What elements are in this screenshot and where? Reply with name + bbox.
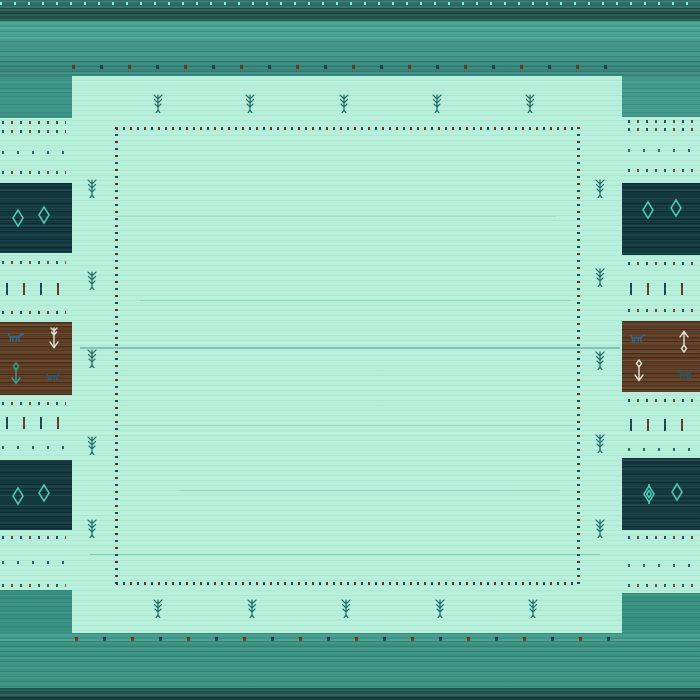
guard-dot-row: [628, 564, 696, 567]
rug-photo: [0, 0, 700, 700]
tree-motif: [524, 93, 536, 113]
guard-dash-row: [630, 419, 692, 431]
guard-dot-row: [75, 637, 622, 641]
animal-motif: [630, 333, 646, 345]
tree-motif: [340, 598, 352, 618]
guard-dot-row: [2, 130, 66, 133]
tree-motif: [152, 598, 164, 618]
guard-dot-row: [72, 65, 622, 69]
guard-dot-row: [628, 309, 696, 312]
band-stripe: [0, 641, 700, 688]
animal-motif: [676, 369, 692, 381]
weft-streak: [140, 300, 570, 301]
diamond-motif: [11, 486, 25, 506]
selvedge-dot-row: [0, 2, 700, 5]
tree-motif: [434, 598, 446, 618]
tree-motif: [594, 267, 606, 287]
panel-navy-bottom-right: [622, 458, 700, 530]
guard-dot-row: [628, 584, 696, 587]
rug-bottom-border-band: [0, 633, 700, 700]
animal-motif: [8, 332, 24, 344]
guard-dot-row: [2, 561, 66, 564]
tree-motif: [338, 93, 350, 113]
panel-navy-top-right: [622, 183, 700, 255]
corner-block-top-right: [622, 76, 700, 117]
inner-dotted-border-right: [577, 127, 580, 585]
guard-dot-row: [628, 120, 696, 123]
guard-dot-row: [2, 584, 66, 587]
weft-streak: [116, 216, 556, 217]
tree-motif: [86, 178, 98, 198]
guard-dot-row: [628, 448, 696, 451]
diamond-motif: [642, 484, 656, 504]
band-stripe: [0, 41, 700, 61]
corner-block-bottom-right: [622, 593, 700, 633]
diamond-motif: [641, 200, 655, 220]
guard-dash-row: [6, 417, 66, 429]
diamond-motif: [11, 208, 25, 228]
guard-dot-row: [2, 261, 66, 264]
guard-dot-row: [2, 171, 66, 174]
weft-streak: [90, 554, 600, 555]
inner-dotted-border-top: [116, 127, 578, 130]
corner-block-top-left: [0, 76, 72, 118]
weft-streak: [180, 490, 560, 491]
weft-streak: [116, 425, 576, 426]
tree-motif: [86, 518, 98, 538]
band-stripe: [0, 21, 700, 41]
guard-dot-row: [2, 402, 66, 405]
tree-motif: [86, 348, 98, 368]
guard-dot-row: [2, 536, 66, 539]
guard-dot-row: [2, 121, 66, 124]
corner-block-bottom-left: [0, 590, 72, 633]
band-stripe: [0, 8, 700, 21]
arrow-motif-diamond-down: [10, 362, 22, 388]
tree-motif: [244, 93, 256, 113]
inner-dotted-border-left: [115, 127, 118, 585]
tree-motif: [594, 350, 606, 370]
arrow-motif-diamond-down: [633, 359, 645, 385]
diamond-motif: [670, 482, 684, 502]
guard-dash-row: [630, 283, 692, 295]
guard-dot-row: [2, 446, 66, 449]
rug-top-border-band: [0, 0, 700, 76]
diamond-motif: [37, 483, 51, 503]
animal-motif: [46, 371, 62, 383]
arrow-motif-flag-down: [48, 326, 60, 352]
tree-motif: [594, 433, 606, 453]
band-stripe: [0, 688, 700, 697]
tree-motif: [152, 93, 164, 113]
arrow-motif-diamond-up: [678, 327, 690, 353]
guard-dot-row: [2, 151, 66, 154]
inner-dotted-border-bottom: [116, 582, 578, 585]
guard-dot-row: [628, 169, 696, 172]
tree-motif: [594, 178, 606, 198]
guard-dot-row: [628, 128, 696, 131]
guard-dot-row: [628, 149, 696, 152]
tree-motif: [86, 435, 98, 455]
guard-dot-row: [628, 262, 696, 265]
guard-dot-row: [628, 399, 696, 402]
tree-motif: [527, 598, 539, 618]
tree-motif: [431, 93, 443, 113]
guard-dash-row: [6, 283, 66, 295]
guard-dot-row: [628, 536, 696, 539]
diamond-motif: [669, 198, 683, 218]
tree-motif: [246, 598, 258, 618]
weft-streak: [80, 347, 620, 349]
tree-motif: [594, 518, 606, 538]
guard-dot-row: [2, 311, 66, 314]
diamond-motif: [37, 205, 51, 225]
tree-motif: [86, 270, 98, 290]
